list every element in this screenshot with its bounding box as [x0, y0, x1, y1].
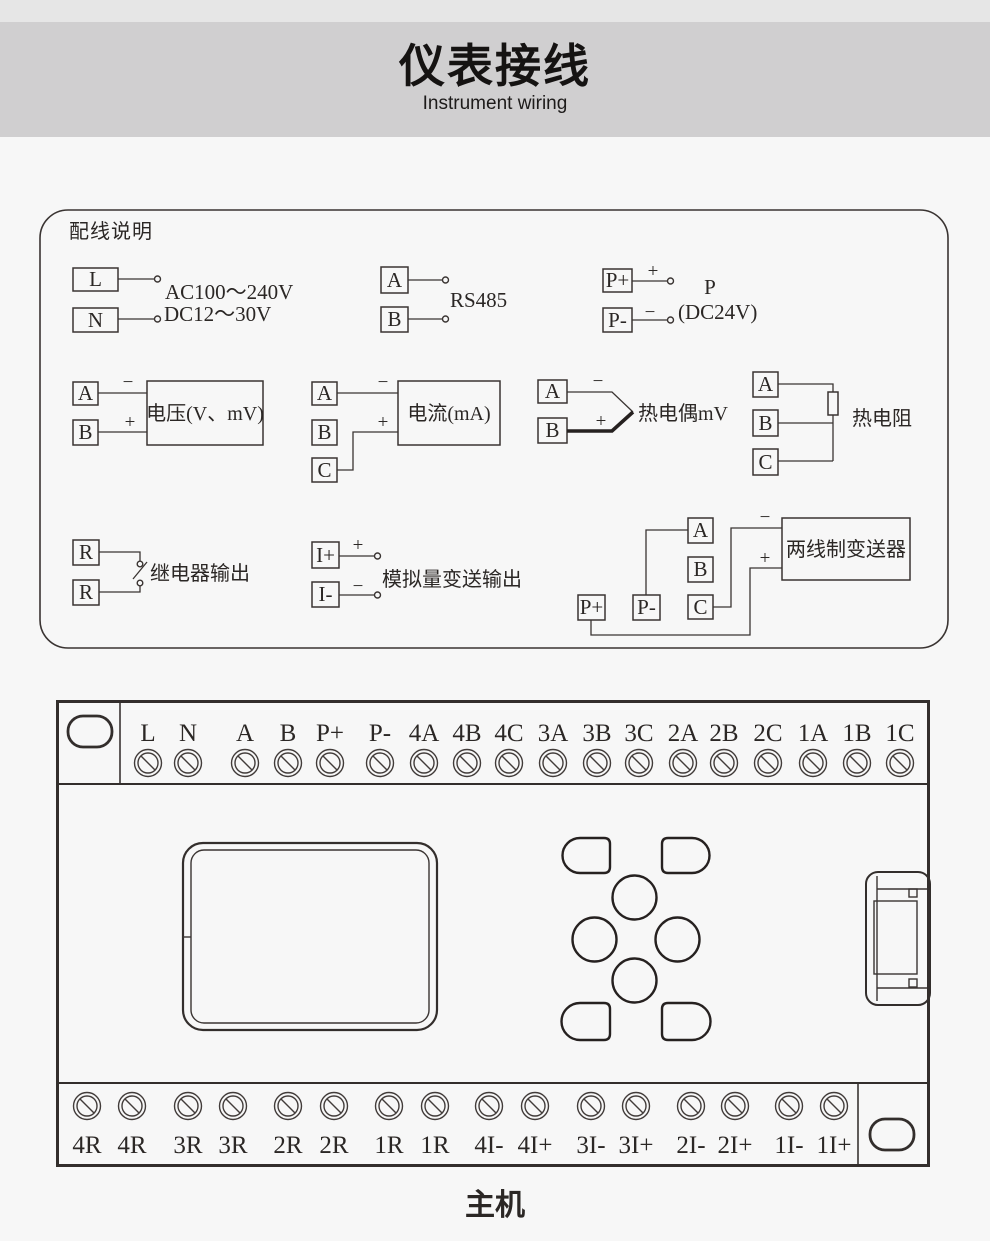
key-left: [573, 918, 617, 962]
wiring-diagram: 配线说明 L N AC100～240V DC12～30V A B RS485: [0, 0, 990, 1241]
terminal-box-label: I-: [319, 582, 333, 606]
screw-terminal-icon: [800, 750, 827, 777]
terminal-label: 3A: [538, 720, 569, 747]
terminal-label: 2R: [319, 1132, 349, 1159]
terminal-label: 4B: [452, 720, 481, 747]
terminal-label: 2C: [753, 720, 782, 747]
terminal-box-label: B: [387, 307, 401, 331]
diagram-thermocouple: A B − + 热电偶mV: [538, 371, 729, 443]
polarity-minus: −: [593, 371, 604, 392]
diagram-voltage-input: A B − + 电压(V、mV): [73, 372, 264, 445]
thermocouple-label: 热电偶mV: [638, 402, 729, 425]
screw-terminal-icon: [232, 750, 259, 777]
resistor-symbol: [828, 392, 838, 415]
key-top-left: [563, 838, 611, 873]
terminal-label: 1R: [374, 1132, 404, 1159]
terminal-box-label: L: [89, 267, 102, 291]
terminal-label: N: [179, 720, 197, 747]
screw-terminal-icon: [755, 750, 782, 777]
main-unit-drawing: L N A B P+ P- 4A 4B 4C 3A 3B 3C 2A 2B 2C…: [58, 702, 931, 1166]
screw-terminal-icon: [376, 1093, 403, 1120]
terminal-label: 4R: [72, 1132, 102, 1159]
screw-terminal-icon: [711, 750, 738, 777]
terminal-label: A: [236, 720, 254, 747]
terminal-label: 4I+: [518, 1132, 553, 1159]
screw-terminal-icon: [522, 1093, 549, 1120]
terminal-box-label: B: [545, 418, 559, 442]
terminal-label: 4C: [494, 720, 523, 747]
terminal-label: 4I-: [474, 1132, 503, 1159]
screw-terminal-icon: [776, 1093, 803, 1120]
polarity-plus: +: [596, 411, 607, 432]
relay-output-label: 继电器输出: [150, 562, 250, 585]
wiring-notes-box: 配线说明 L N AC100～240V DC12～30V A B RS485: [40, 210, 948, 648]
screw-terminal-icon: [135, 750, 162, 777]
terminal-label: 1I+: [817, 1132, 852, 1159]
polarity-plus: +: [353, 535, 364, 556]
polarity-minus: −: [760, 507, 771, 528]
wiring-notes-title: 配线说明: [69, 220, 153, 243]
terminal-label: 2I-: [676, 1132, 705, 1159]
key-up: [613, 876, 657, 920]
diagram-power-supply: L N AC100～240V DC12～30V: [73, 267, 293, 332]
screw-terminal-icon: [578, 1093, 605, 1120]
terminal-box-label: A: [387, 268, 403, 292]
main-unit-caption: 主机: [465, 1189, 525, 1222]
screw-terminal-icon: [670, 750, 697, 777]
key-top-right: [662, 838, 710, 873]
terminal-label: B: [280, 720, 297, 747]
screw-terminal-icon: [367, 750, 394, 777]
screw-terminal-icon: [317, 750, 344, 777]
terminal-label: 3R: [218, 1132, 248, 1159]
screw-terminal-icon: [844, 750, 871, 777]
terminal-label: 2A: [668, 720, 699, 747]
polarity-plus: +: [125, 412, 136, 433]
terminal-label: 4R: [117, 1132, 147, 1159]
screw-terminal-icon: [422, 1093, 449, 1120]
terminal-label: 1I-: [774, 1132, 803, 1159]
screw-terminal-icon: [476, 1093, 503, 1120]
key-bottom-right: [662, 1003, 711, 1040]
screw-terminal-icon: [411, 750, 438, 777]
analog-output-label: 模拟量变送输出: [382, 568, 522, 591]
transmitter-label: 两线制变送器: [786, 538, 906, 561]
terminal-label: 3I-: [576, 1132, 605, 1159]
terminal-box-label: A: [317, 381, 333, 405]
lcd-display: [183, 843, 437, 1030]
current-input-label: 电流(mA): [407, 402, 490, 425]
terminal-box-label: P-: [608, 308, 627, 332]
polarity-plus: +: [760, 548, 771, 569]
terminal-box-label: N: [88, 308, 103, 332]
polarity-minus: −: [645, 302, 656, 323]
polarity-minus: −: [123, 372, 134, 393]
screw-terminal-icon: [454, 750, 481, 777]
terminal-box-label: P+: [580, 595, 604, 619]
terminal-label: 3I+: [619, 1132, 654, 1159]
terminal-label: 3C: [624, 720, 653, 747]
diagram-rtd: A B C 热电阻: [753, 372, 912, 475]
key-bottom-left: [562, 1003, 611, 1040]
diagram-current-input: A B C − + 电流(mA): [312, 372, 500, 482]
terminal-label: 4A: [409, 720, 440, 747]
key-right: [656, 918, 700, 962]
bottom-terminal-screws: [74, 1093, 848, 1120]
top-terminal-screws: [135, 750, 914, 777]
terminal-box-label: P-: [637, 595, 656, 619]
diagram-relay-output: R R 继电器输出: [73, 540, 250, 605]
terminal-box-label: B: [758, 411, 772, 435]
terminal-box-label: B: [693, 557, 707, 581]
terminal-box-label: R: [79, 540, 93, 564]
terminal-box-label: A: [78, 381, 94, 405]
screw-terminal-icon: [678, 1093, 705, 1120]
screw-terminal-icon: [722, 1093, 749, 1120]
screw-terminal-icon: [175, 750, 202, 777]
terminal-label: L: [140, 720, 155, 747]
terminal-box-label: B: [317, 420, 331, 444]
terminal-label: P+: [316, 720, 344, 747]
mounting-slot: [68, 716, 112, 747]
terminal-box-label: A: [758, 372, 774, 396]
terminal-label: 1R: [420, 1132, 450, 1159]
terminal-box-label: R: [79, 580, 93, 604]
screw-terminal-icon: [74, 1093, 101, 1120]
mounting-slot: [870, 1119, 914, 1150]
screw-terminal-icon: [887, 750, 914, 777]
terminal-label: 1A: [798, 720, 829, 747]
terminal-box-label: P+: [606, 268, 630, 292]
diagram-analog-output: I+ + I- − 模拟量变送输出: [312, 535, 522, 607]
side-connector: [866, 872, 930, 1005]
terminal-label: 2R: [273, 1132, 303, 1159]
screw-terminal-icon: [623, 1093, 650, 1120]
terminal-box-label: A: [693, 518, 709, 542]
keypad: [562, 838, 711, 1040]
screw-terminal-icon: [321, 1093, 348, 1120]
rtd-label: 热电阻: [852, 407, 912, 430]
terminal-box-label: I+: [316, 543, 335, 567]
diagram-two-wire-transmitter: A B C P+ P- − + 两线制变送器: [578, 507, 910, 635]
screw-terminal-icon: [540, 750, 567, 777]
polarity-plus: +: [378, 412, 389, 433]
terminal-label: 2B: [709, 720, 738, 747]
bottom-terminal-labels: 4R 4R 3R 3R 2R 2R 1R 1R 4I- 4I+ 3I- 3I+ …: [72, 1132, 851, 1159]
screw-terminal-icon: [496, 750, 523, 777]
screw-terminal-icon: [175, 1093, 202, 1120]
diagram-power-output: P+ + P- − P (DC24V): [603, 261, 757, 332]
power-rating-line1: AC100～240V: [165, 280, 293, 304]
polarity-plus: +: [648, 261, 659, 282]
screw-terminal-icon: [119, 1093, 146, 1120]
terminal-label: 3R: [173, 1132, 203, 1159]
terminal-label: P-: [369, 720, 391, 747]
top-terminal-labels: L N A B P+ P- 4A 4B 4C 3A 3B 3C 2A 2B 2C…: [140, 720, 914, 747]
screw-terminal-icon: [584, 750, 611, 777]
diagram-rs485: A B RS485: [381, 267, 507, 332]
screw-terminal-icon: [220, 1093, 247, 1120]
terminal-label: 3B: [582, 720, 611, 747]
terminal-box-label: C: [758, 450, 772, 474]
polarity-minus: −: [353, 576, 364, 597]
power-output-label: P: [704, 275, 716, 299]
terminal-box-label: C: [317, 458, 331, 482]
terminal-box-label: C: [693, 595, 707, 619]
key-down: [613, 959, 657, 1003]
power-rating-line2: DC12～30V: [164, 302, 271, 326]
voltage-input-label: 电压(V、mV): [146, 402, 264, 425]
screw-terminal-icon: [275, 750, 302, 777]
screw-terminal-icon: [626, 750, 653, 777]
polarity-minus: −: [378, 372, 389, 393]
terminal-label: 2I+: [718, 1132, 753, 1159]
terminal-label: 1C: [885, 720, 914, 747]
rs485-label: RS485: [450, 288, 507, 312]
terminal-label: 1B: [842, 720, 871, 747]
screw-terminal-icon: [275, 1093, 302, 1120]
terminal-box-label: A: [545, 379, 561, 403]
power-output-voltage: (DC24V): [678, 300, 757, 324]
screw-terminal-icon: [821, 1093, 848, 1120]
terminal-box-label: B: [78, 420, 92, 444]
